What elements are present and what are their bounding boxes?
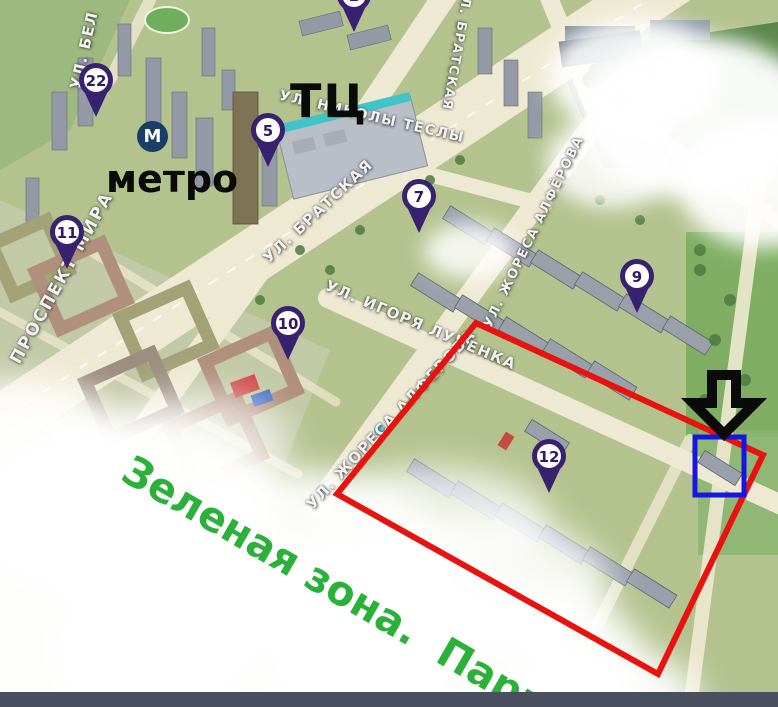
map-pin-10[interactable]: 10 bbox=[266, 304, 310, 362]
bottom-bar bbox=[0, 692, 778, 707]
map-pin-12[interactable]: 12 bbox=[527, 437, 571, 495]
pin-number: 9 bbox=[632, 268, 642, 286]
metro-station-icon: М bbox=[137, 121, 168, 152]
shopping-center-label: ТЦ bbox=[290, 78, 368, 124]
map-pin-9[interactable]: 9 bbox=[615, 257, 659, 315]
pin-number: 10 bbox=[278, 315, 299, 333]
pin-number: 22 bbox=[86, 72, 107, 90]
map-pin-2[interactable]: 2 bbox=[332, 0, 376, 34]
map-pin-5[interactable]: 5 bbox=[246, 111, 290, 169]
annotated-aerial-map: УЛ. БЕЛ ПРОСПЕКТ МИРА УЛ. НИКОЛЫ ТЕСЛЫ У… bbox=[0, 0, 778, 707]
pin-number: 5 bbox=[263, 122, 273, 140]
pin-number: 11 bbox=[57, 224, 78, 242]
map-pin-7[interactable]: 7 bbox=[397, 177, 441, 235]
map-pin-22[interactable]: 22 bbox=[74, 61, 118, 119]
metro-caption: метро bbox=[106, 160, 238, 198]
pin-number: 2 bbox=[349, 0, 359, 5]
pin-number: 7 bbox=[414, 188, 424, 206]
pin-number: 12 bbox=[539, 448, 560, 466]
map-pin-11[interactable]: 11 bbox=[45, 213, 89, 271]
